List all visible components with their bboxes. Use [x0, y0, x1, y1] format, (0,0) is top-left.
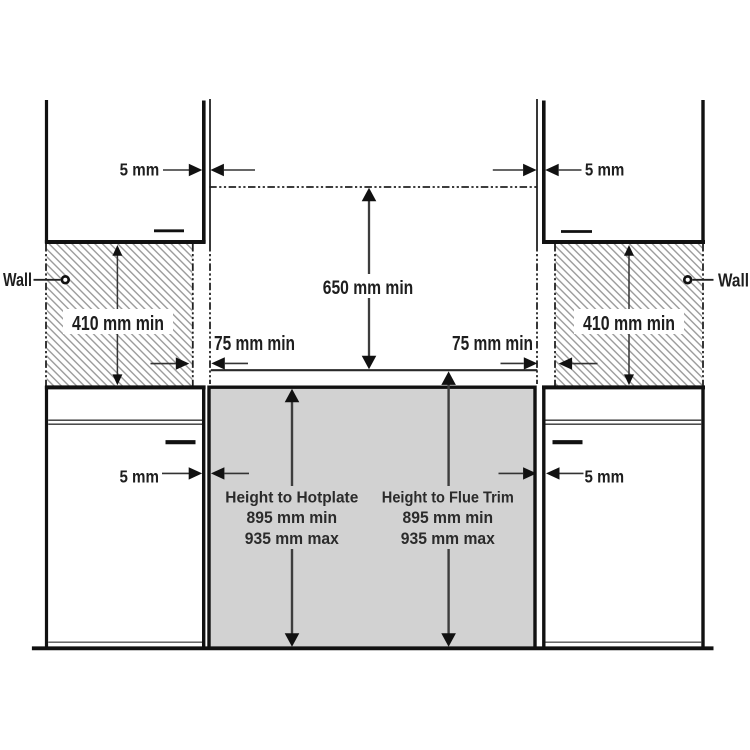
svg-text:Height to Flue Trim: Height to Flue Trim: [382, 490, 514, 507]
svg-text:Height to Hotplate: Height to Hotplate: [225, 490, 358, 507]
svg-text:895 mm min: 895 mm min: [247, 508, 338, 527]
svg-text:895 mm min: 895 mm min: [403, 508, 494, 527]
svg-text:75 mm min: 75 mm min: [214, 333, 295, 355]
svg-text:Wall: Wall: [3, 270, 32, 290]
svg-text:5 mm: 5 mm: [585, 160, 625, 180]
svg-text:650 mm min: 650 mm min: [323, 277, 414, 299]
svg-text:5 mm: 5 mm: [585, 466, 625, 486]
svg-text:410 mm min: 410 mm min: [583, 313, 675, 335]
svg-text:5 mm: 5 mm: [119, 466, 159, 486]
svg-text:410 mm min: 410 mm min: [72, 313, 164, 335]
svg-text:935 mm max: 935 mm max: [401, 529, 495, 548]
svg-text:5 mm: 5 mm: [120, 160, 160, 180]
svg-text:Wall: Wall: [718, 271, 749, 291]
svg-text:75 mm min: 75 mm min: [452, 333, 533, 355]
svg-text:935 mm max: 935 mm max: [245, 529, 339, 548]
